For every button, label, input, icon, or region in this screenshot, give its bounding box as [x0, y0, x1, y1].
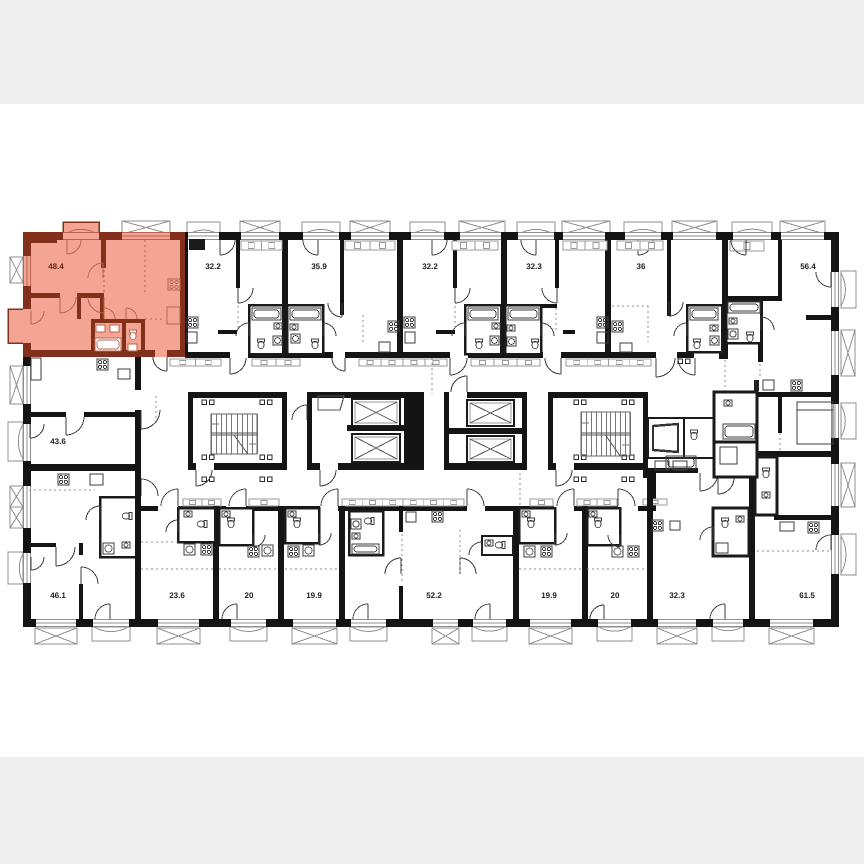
svg-text:20: 20 [611, 591, 620, 600]
svg-text:46.1: 46.1 [50, 591, 66, 600]
svg-text:43.6: 43.6 [50, 437, 66, 446]
svg-text:52.2: 52.2 [426, 591, 442, 600]
svg-text:32.3: 32.3 [669, 591, 685, 600]
svg-text:32.3: 32.3 [526, 262, 542, 271]
svg-text:56.4: 56.4 [800, 262, 816, 271]
svg-text:32.2: 32.2 [205, 262, 221, 271]
svg-text:36: 36 [637, 262, 646, 271]
svg-text:61.5: 61.5 [799, 591, 815, 600]
svg-text:19.9: 19.9 [306, 591, 322, 600]
svg-text:20: 20 [245, 591, 254, 600]
svg-text:19.9: 19.9 [541, 591, 557, 600]
svg-text:32.2: 32.2 [422, 262, 438, 271]
svg-text:23.6: 23.6 [169, 591, 185, 600]
svg-text:48.4: 48.4 [48, 262, 64, 271]
svg-text:35.9: 35.9 [311, 262, 327, 271]
